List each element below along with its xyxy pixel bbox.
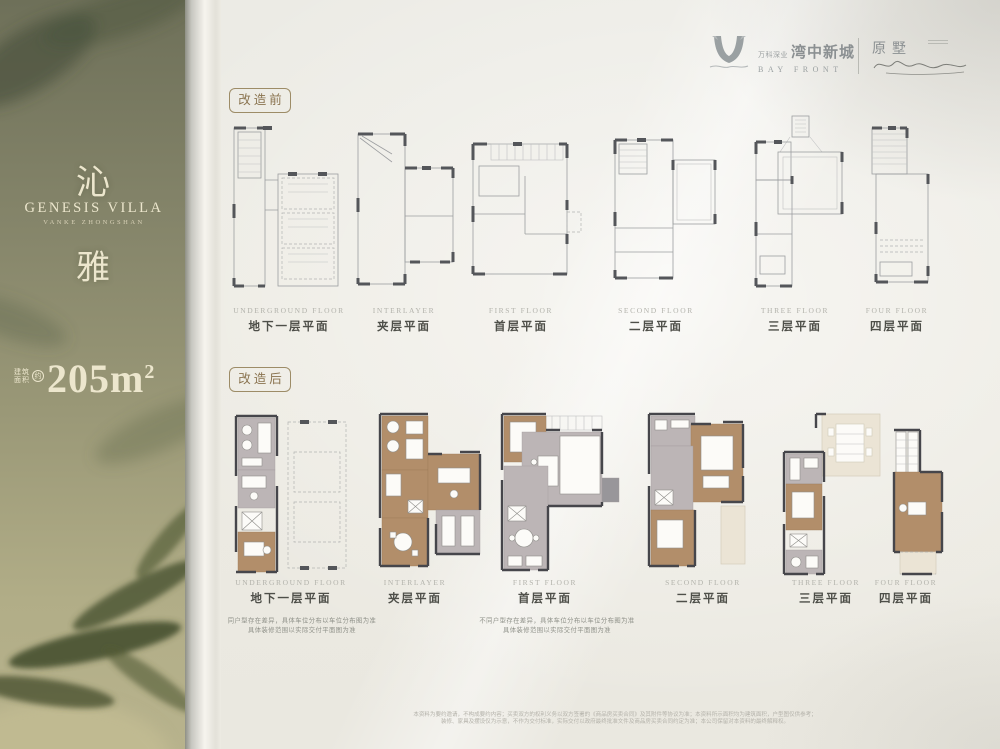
area-prefix: 建筑 面积 <box>14 368 30 384</box>
note-right-line1: 不同户型存在差异，具体车位分布以车位分布图为准 <box>436 616 679 626</box>
villa-name-char-top: 沁 <box>0 155 188 204</box>
note-left-line1: 同户型存在差异，具体车位分布以车位分布图为准 <box>181 616 424 626</box>
page-curl-edge <box>185 0 221 749</box>
floorplan-after-first <box>498 410 624 580</box>
area-approx-circle: 约 <box>32 370 44 382</box>
note-left: 同户型存在差异，具体车位分布以车位分布图为准 具体装修范围以实际交付平面图为准 <box>181 616 424 636</box>
note-right: 不同户型存在差异，具体车位分布以车位分布图为准 具体装修范围以实际交付平面图为准 <box>436 616 679 636</box>
area-prefix-top: 建筑 <box>14 368 30 376</box>
villa-brand-submark <box>928 40 948 46</box>
floorplan-after-three <box>778 412 882 580</box>
floorplan-after-underground <box>230 410 352 578</box>
project-name: 湾中新城 <box>791 41 855 62</box>
villa-name-char-bottom: 雅 <box>0 240 188 289</box>
badge-before-renovation: 改造前 <box>229 88 291 113</box>
note-right-line2: 具体装修范围以实际交付平面图为准 <box>436 626 679 636</box>
label-en: FOUR FLOOR <box>816 578 996 587</box>
badge-after-renovation: 改造后 <box>229 367 291 392</box>
disclaimer-line2: 装修、家具及摆设仅为示意，不作为交付标准，实际交付以政府最终批准文件及商品房买卖… <box>301 718 930 725</box>
floorplan-before-four <box>860 122 942 292</box>
label-after-first: FIRST FLOOR 首层平面 <box>455 578 635 606</box>
area-prefix-bottom: 面积 <box>14 376 30 384</box>
footer-disclaimer: 本资料为要约邀请，不构成要约内容；买卖双方的权利义务以双方签署的《商品房买卖合同… <box>301 711 930 725</box>
floorplan-after-four <box>888 426 952 578</box>
area-value: 205m2 <box>47 352 155 399</box>
villa-name-subtitle: VANKE ZHONGSHAN <box>0 219 188 226</box>
floorplan-after-interlayer <box>376 410 486 572</box>
brochure-paper <box>188 0 1000 749</box>
project-name-english: BAY FRONT <box>758 65 853 74</box>
label-en: FIRST FLOOR <box>455 578 635 587</box>
villa-name-english: GENESIS VILLA <box>0 200 188 217</box>
area-figure: 建筑 面积 约 205m2 <box>14 352 184 399</box>
left-panel-text: 沁 GENESIS VILLA VANKE ZHONGSHAN 雅 建筑 面积 … <box>0 0 188 749</box>
developer-logo: 万科深业 湾中新城 BAY FRONT <box>758 41 853 74</box>
note-left-line2: 具体装修范围以实际交付平面图为准 <box>181 626 424 636</box>
bayfront-u-logo-icon <box>708 34 750 76</box>
label-before-four: FOUR FLOOR 四层平面 <box>807 306 987 334</box>
developer-name-small: 万科深业 <box>758 50 788 62</box>
villa-brand-logo: 原墅 <box>872 38 968 58</box>
label-cn: 四层平面 <box>816 590 996 606</box>
floorplan-before-three <box>750 114 850 294</box>
floorplan-before-second <box>607 132 719 288</box>
disclaimer-line1: 本资料为要约邀请，不构成要约内容；买卖双方的权利义务以双方签署的《商品房买卖合同… <box>301 711 930 718</box>
label-cn: 四层平面 <box>807 318 987 334</box>
label-en: FOUR FLOOR <box>807 306 987 315</box>
villa-signature-icon <box>872 54 968 76</box>
floorplan-before-first <box>465 136 583 290</box>
area-exponent: 2 <box>144 361 155 383</box>
floorplan-after-second <box>645 410 751 580</box>
label-cn: 首层平面 <box>455 590 635 606</box>
label-after-four: FOUR FLOOR 四层平面 <box>816 578 996 606</box>
brand-header: 万科深业 湾中新城 BAY FRONT 原墅 <box>700 30 970 80</box>
floorplan-before-interlayer <box>348 128 458 292</box>
floorplan-before-underground <box>230 118 348 304</box>
brand-divider <box>858 38 859 74</box>
